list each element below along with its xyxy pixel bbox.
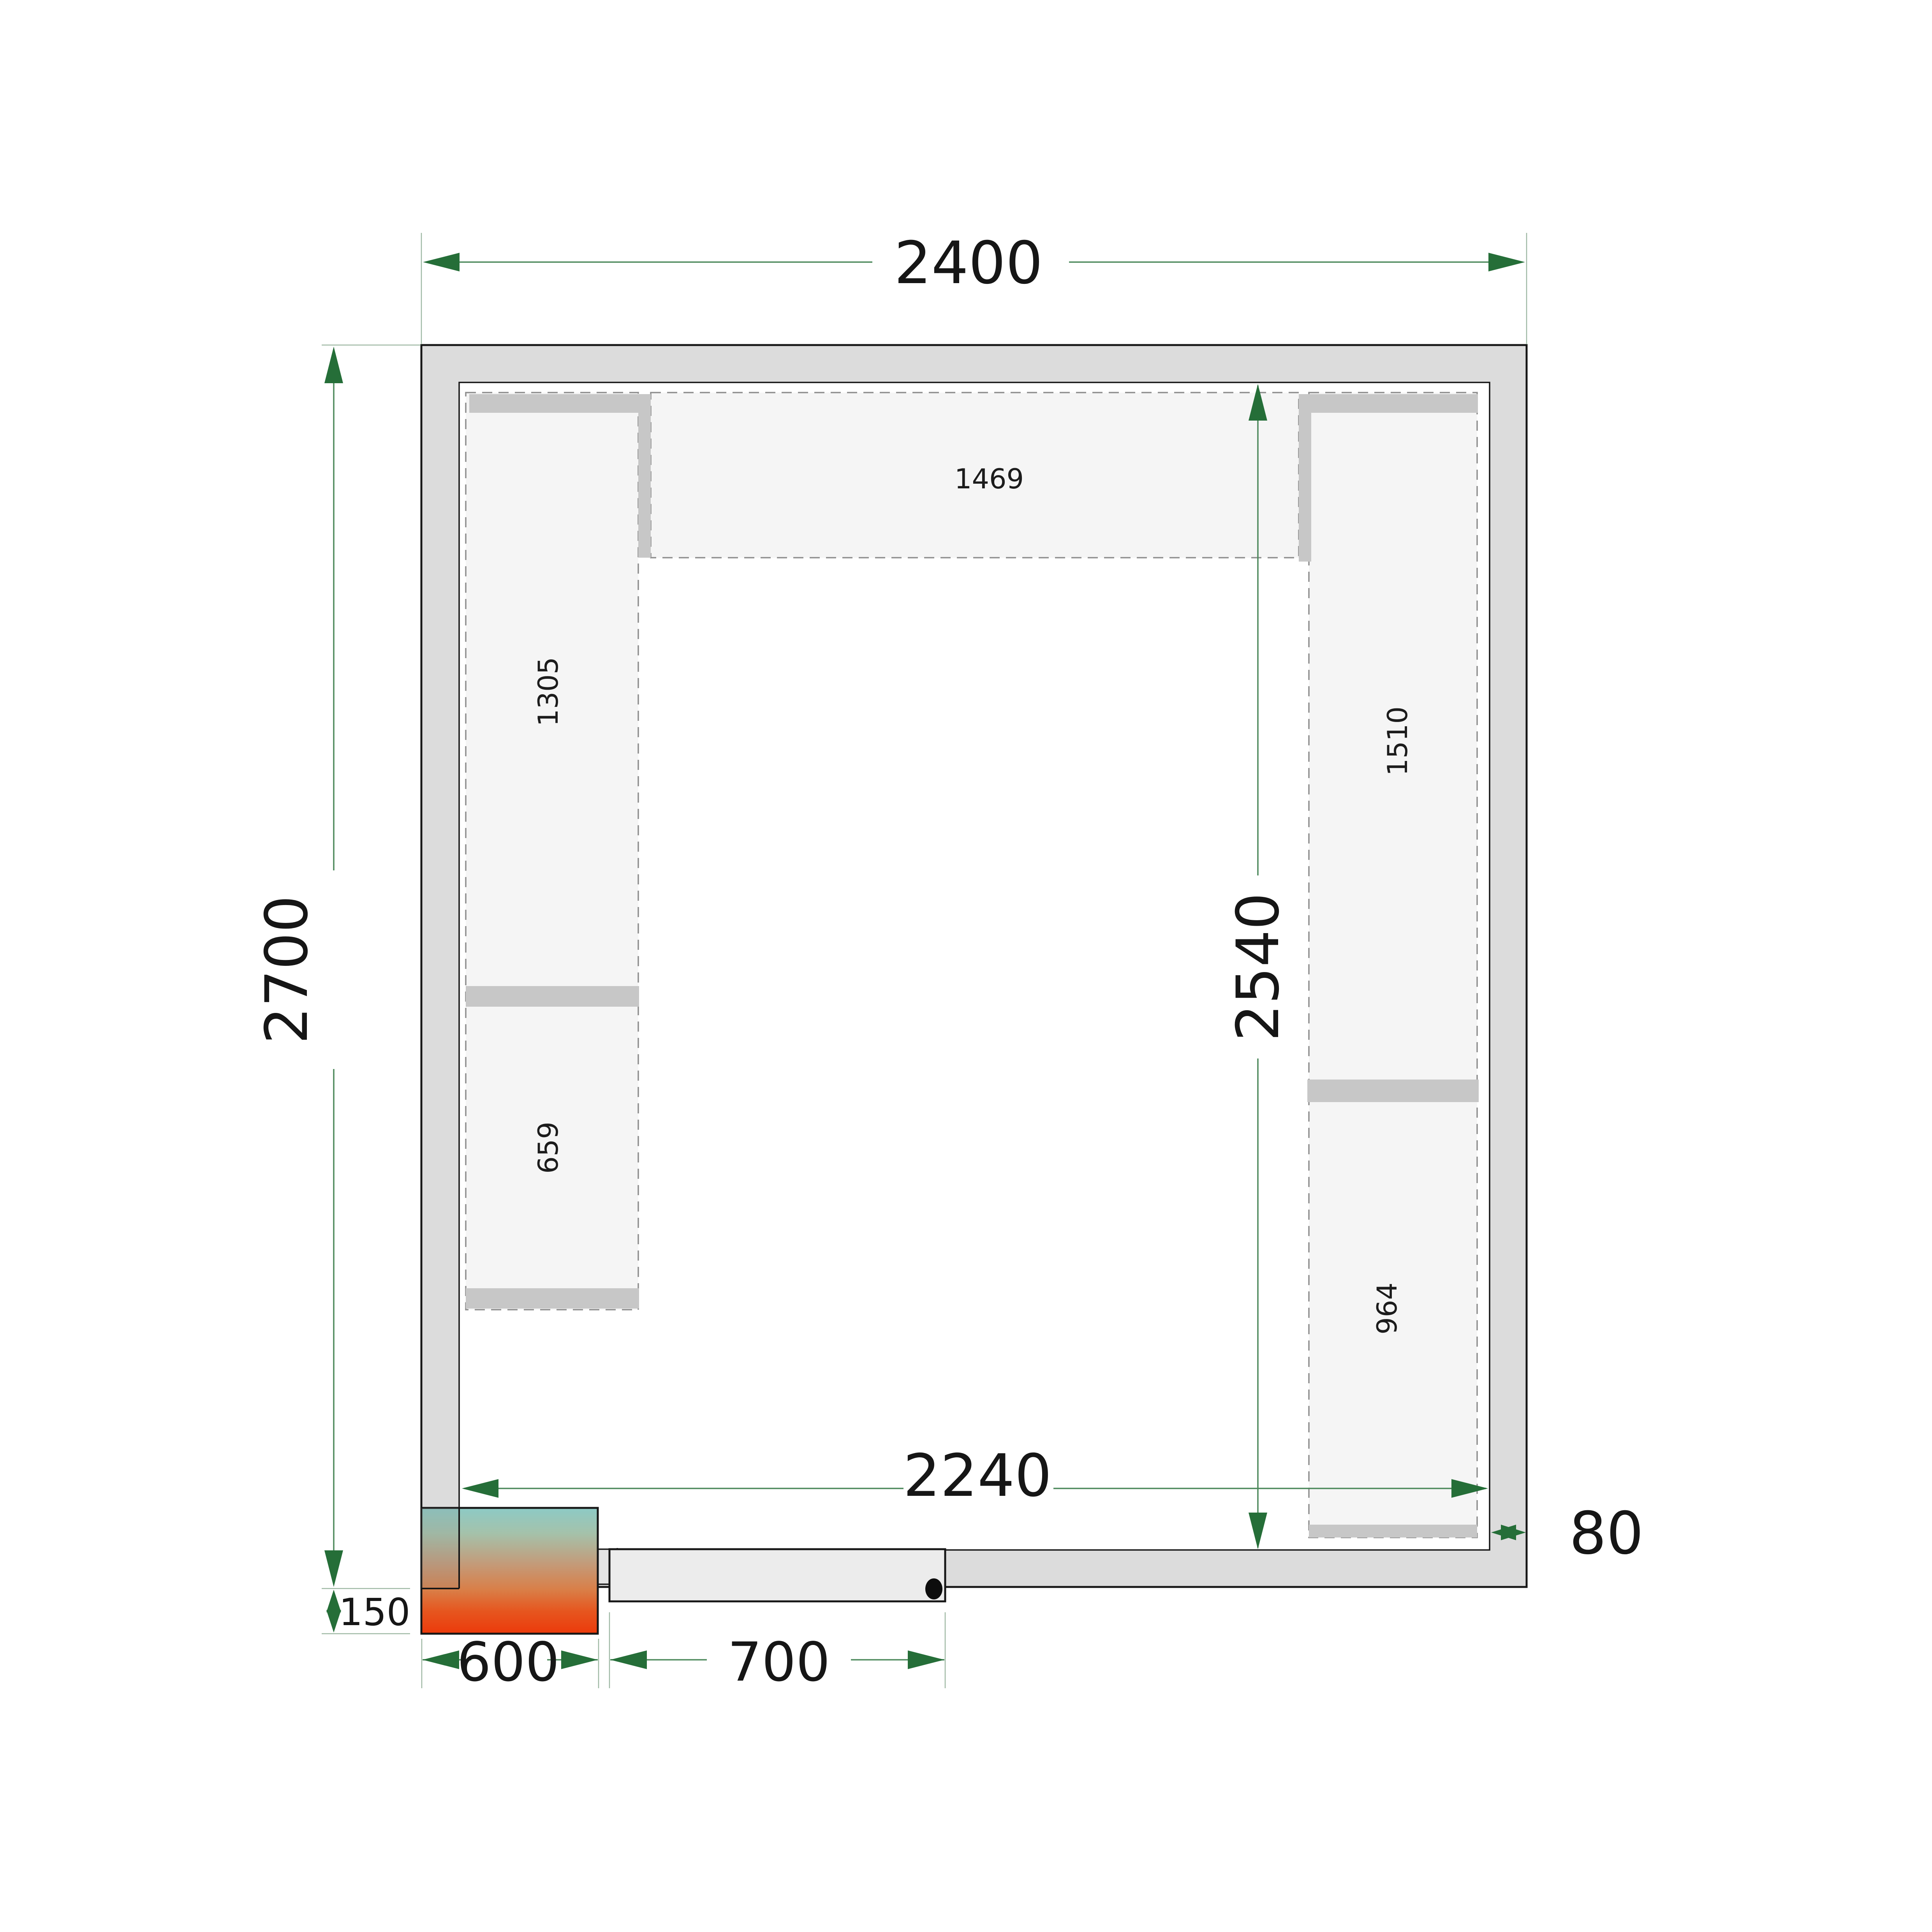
dim-arrowhead-left-icon [610,1650,647,1669]
shelf-support-left-bottom [466,1288,639,1309]
dim-arrowhead-up-icon [324,347,343,383]
wall-corner-overlap [421,1508,459,1589]
dim-arrowhead-right-icon [1488,253,1525,271]
cold-room-plan-drawing: 1469 1305 659 1510 964 2400 2700 2240 [0,0,1932,1932]
dimension-unit-protrusion: 150 [322,1590,410,1634]
shelf-support-right-bottom [1309,1525,1477,1537]
overall-width-label: 2400 [894,229,1043,297]
dimension-overall-width: 2400 [421,229,1527,344]
dimension-overall-height: 2700 [253,345,421,1589]
door-width-label: 700 [727,1631,830,1694]
shelf-left-lower-length-label: 659 [532,1122,564,1174]
dim-arrowhead-down-icon [324,1550,343,1587]
overall-height-label: 2700 [253,895,321,1044]
dimension-unit-width: 600 [422,1631,599,1694]
shelf-support-top-left-horizontal [469,394,651,413]
shelf-right-upper-length-label: 1510 [1382,706,1414,776]
unit-width-label: 600 [457,1631,559,1694]
shelf-left-upper-length-label: 1305 [532,657,564,726]
floor-plan-canvas: 1469 1305 659 1510 964 2400 2700 2240 [0,0,1932,1932]
dim-arrowhead-right-icon [561,1650,598,1669]
shelf-support-top-right-vertical [1299,394,1311,562]
dim-arrowhead-left-icon [423,253,460,271]
dim-arrowhead-right-icon [908,1650,944,1669]
shelf-support-top-right-horizontal [1299,394,1478,413]
unit-protrusion-label: 150 [339,1590,410,1634]
dimension-door-width: 700 [609,1612,945,1694]
shelf-support-left-divider [466,986,639,1007]
shelf-top-length-label: 1469 [955,463,1024,495]
inner-width-label: 2240 [903,1442,1052,1510]
shelf-right-lower-length-label: 964 [1371,1282,1403,1335]
shelf-support-right-divider [1307,1080,1479,1102]
dim-arrowhead-left-icon [423,1650,459,1669]
shelf-right-column [1309,393,1477,1537]
wall-thickness-label: 80 [1569,1500,1644,1567]
door-handle-icon [925,1578,942,1599]
inner-height-label: 2540 [1224,893,1292,1041]
door-leaf [609,1549,945,1601]
shelf-support-top-left-vertical [638,394,651,558]
